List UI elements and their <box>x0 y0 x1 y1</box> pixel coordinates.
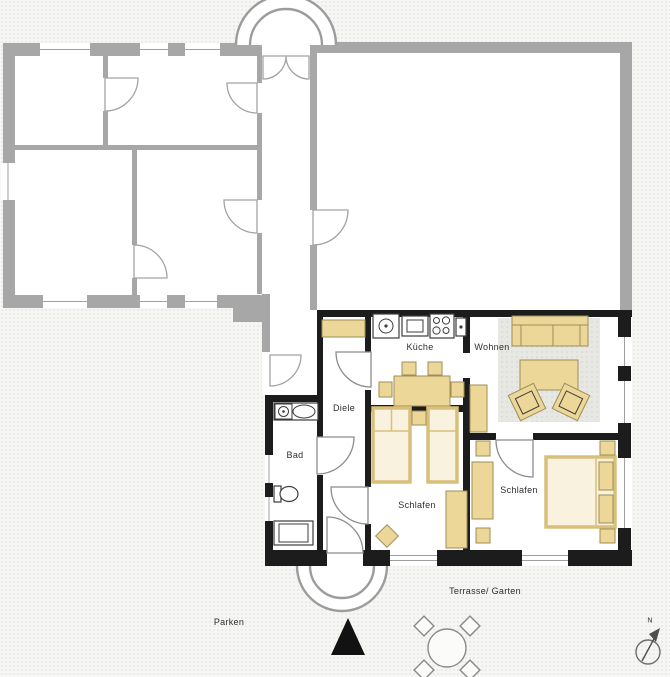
pillow <box>599 495 613 523</box>
room-label-bad: Bad <box>287 450 304 460</box>
terrace-garden-label: Terrasse/ Garten <box>449 586 521 596</box>
single-bed <box>428 408 457 482</box>
side-table <box>476 441 490 456</box>
pillow <box>599 462 613 490</box>
dining-chair <box>428 362 442 375</box>
nightstand <box>600 441 615 455</box>
room-label-schlafen-right: Schlafen <box>500 485 537 495</box>
shower-icon <box>274 521 313 545</box>
north-arrow-icon <box>636 628 660 664</box>
room-label-wohnen: Wohnen <box>474 342 509 352</box>
room-label-diele: Diele <box>333 403 355 413</box>
cabinet <box>470 385 487 432</box>
entrance-marker-icon <box>331 618 365 655</box>
dining-chair <box>402 362 416 375</box>
oven-icon <box>402 316 428 336</box>
hall-sideboard <box>322 320 365 337</box>
dining-chair <box>379 382 392 397</box>
room-label-kueche: Küche <box>406 342 433 352</box>
kitchen-counter <box>373 314 466 338</box>
dining-chair <box>451 382 464 397</box>
floor-plan: Küche Wohnen Diele Bad Schlafen Schlafen… <box>0 0 670 677</box>
stove-icon <box>430 314 454 338</box>
nightstand <box>412 411 426 425</box>
vanity <box>274 403 318 420</box>
north-label: N <box>647 618 652 625</box>
parking-label: Parken <box>214 617 244 627</box>
entrance-arch <box>236 0 336 45</box>
floor-plan-drawing <box>0 0 670 677</box>
garden-table-icon <box>414 616 480 677</box>
nightstand <box>600 529 615 543</box>
sofa <box>512 316 588 346</box>
wardrobe <box>446 491 467 548</box>
single-bed <box>373 408 410 482</box>
wardrobe <box>472 462 493 519</box>
room-label-schlafen-left: Schlafen <box>398 500 435 510</box>
toilet-icon <box>274 486 298 502</box>
side-table <box>476 528 490 543</box>
double-bed <box>546 457 615 527</box>
terrace-arch <box>297 566 387 611</box>
